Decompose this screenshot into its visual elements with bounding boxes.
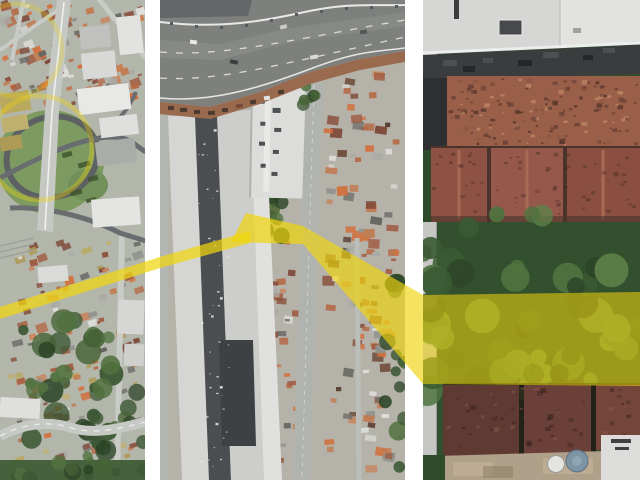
closeup-mottled-roof <box>423 76 640 150</box>
closeup-white-building <box>423 0 640 53</box>
collage-stage <box>0 0 640 480</box>
panel-aerial-street-block <box>160 0 405 480</box>
closeup-corner-building <box>601 435 640 480</box>
panel-aerial-lot-closeup <box>423 0 640 480</box>
panel-aerial-overview <box>0 0 145 480</box>
